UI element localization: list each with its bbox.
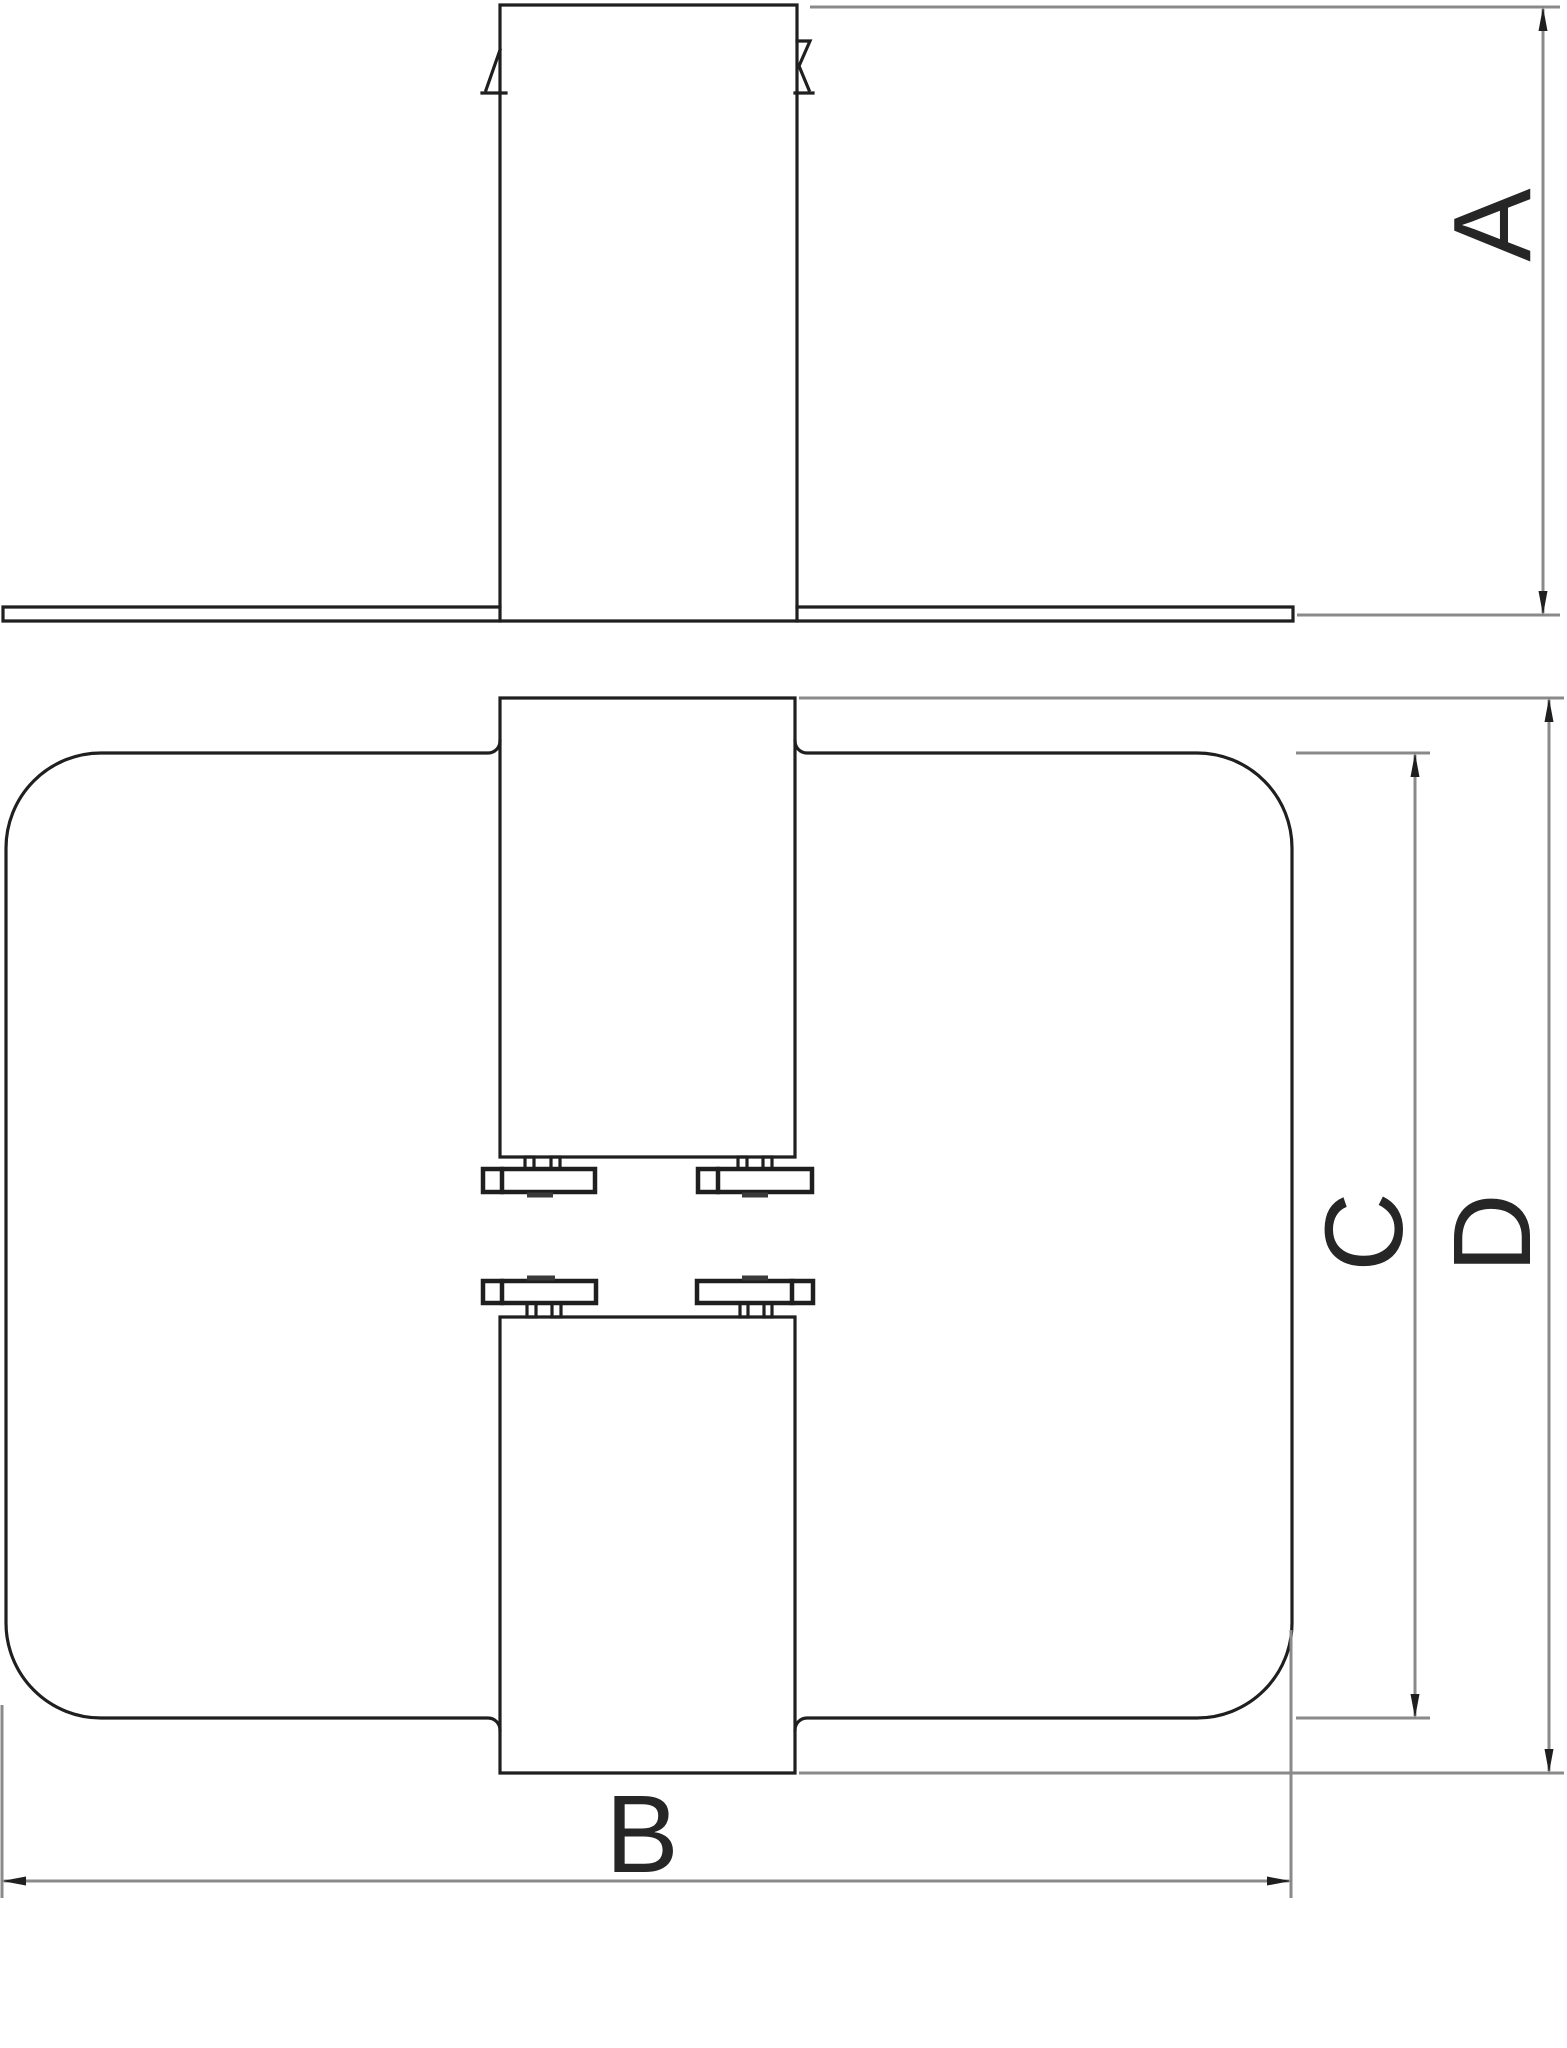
- dim-b-arrow-right-icon: [1267, 1877, 1291, 1886]
- dimension-a: A: [810, 7, 1560, 615]
- clamp-bar: [698, 1169, 812, 1192]
- dim-a-label: A: [1431, 188, 1554, 262]
- clamp-lower-right: [697, 1278, 813, 1317]
- dim-c-arrow-up-icon: [1411, 753, 1420, 777]
- dim-a-arrow-down-icon: [1539, 591, 1548, 615]
- technical-drawing-page: A: [0, 0, 1567, 2048]
- dimension-c: C: [1296, 753, 1430, 1718]
- drawing-canvas: A: [0, 0, 1567, 2048]
- clamp-bar: [697, 1281, 813, 1303]
- clamp-upper-left: [483, 1157, 595, 1195]
- side-view: A: [3, 5, 1560, 621]
- dim-b-label: B: [605, 1773, 678, 1896]
- dim-c-arrow-down-icon: [1411, 1694, 1420, 1718]
- column-outline: [500, 5, 797, 621]
- strip-lower-outline: [500, 1317, 795, 1773]
- rounded-plate-outline: [6, 741, 1292, 1730]
- dim-a-arrow-up-icon: [1539, 7, 1548, 31]
- dimension-d: D: [799, 698, 1564, 1773]
- base-plate-outline: [3, 607, 1293, 621]
- dim-b-arrow-left-icon: [2, 1877, 26, 1886]
- plan-view: C D B: [2, 698, 1564, 1898]
- dim-c-label: C: [1303, 1192, 1426, 1271]
- dim-d-arrow-up-icon: [1545, 698, 1554, 722]
- clamp-lower-left: [483, 1278, 596, 1317]
- dim-d-arrow-down-icon: [1545, 1749, 1554, 1773]
- dimension-b: B: [2, 1630, 1291, 1898]
- dim-d-label: D: [1431, 1193, 1554, 1272]
- strip-upper-outline: [500, 698, 795, 1157]
- clamp-upper-right: [698, 1157, 812, 1195]
- weld-mark-left-icon: [482, 50, 506, 93]
